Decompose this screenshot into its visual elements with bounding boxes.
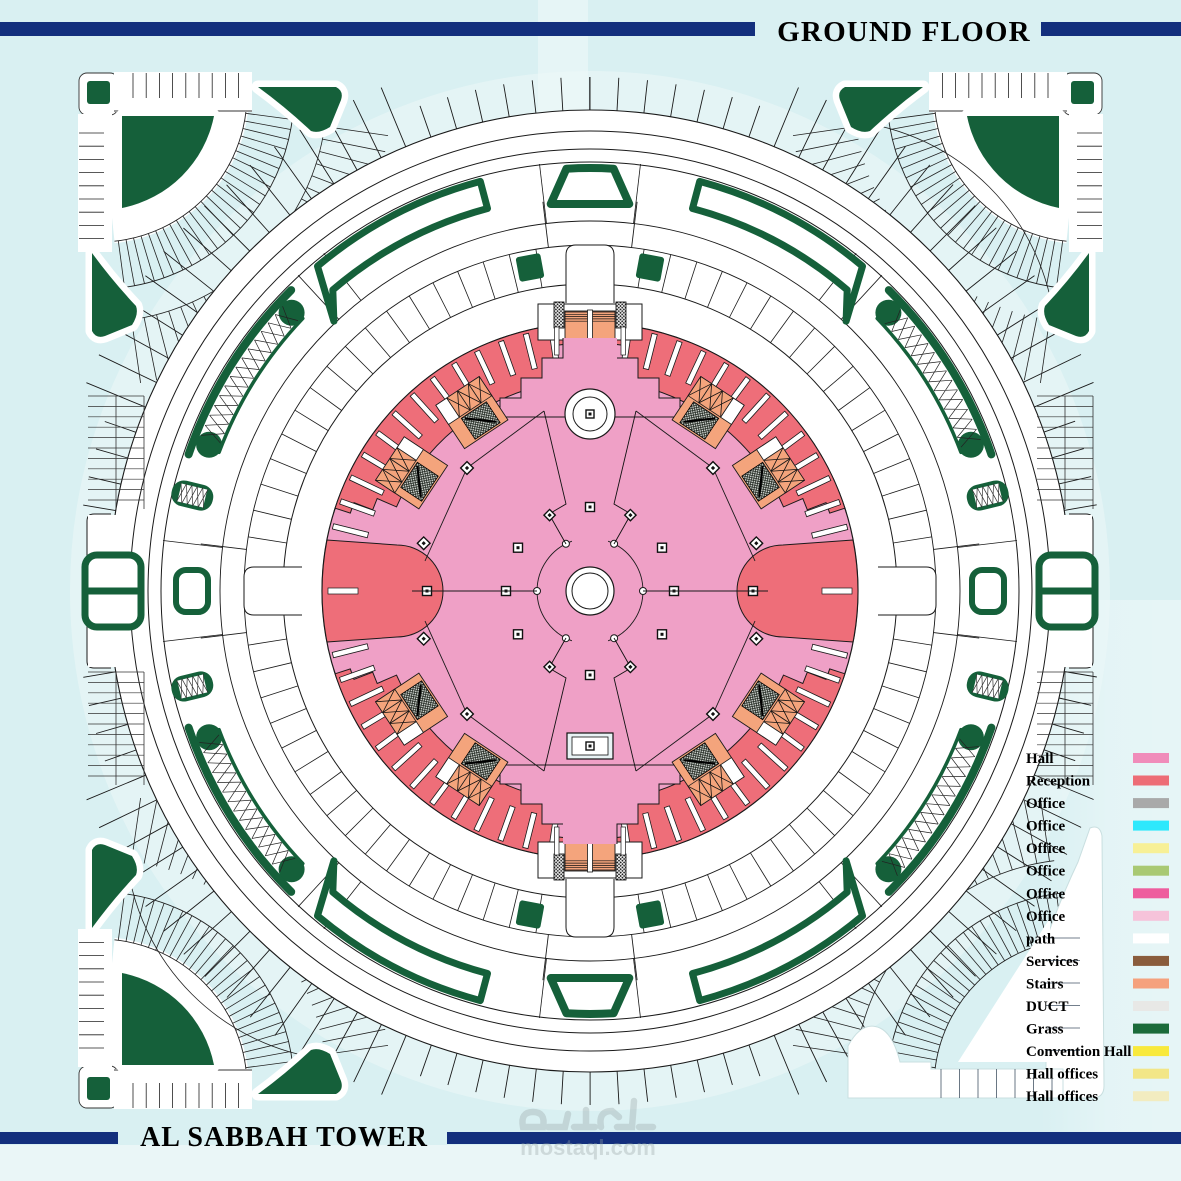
- svg-text:Hall offices: Hall offices: [1026, 1067, 1098, 1083]
- svg-text:Office: Office: [1026, 909, 1065, 925]
- svg-text:AL SABBAH TOWER: AL SABBAH TOWER: [140, 1122, 428, 1153]
- svg-text:path: path: [1026, 931, 1056, 947]
- svg-text:Office: Office: [1026, 796, 1065, 812]
- svg-text:DUCT: DUCT: [1026, 999, 1069, 1015]
- svg-text:GROUND FLOOR: GROUND FLOOR: [777, 16, 1031, 48]
- svg-text:Grass: Grass: [1026, 1022, 1064, 1038]
- svg-text:Hall: Hall: [1026, 751, 1054, 767]
- svg-text:Office: Office: [1026, 886, 1065, 902]
- svg-text:mostaql.com: mostaql.com: [520, 1135, 656, 1160]
- svg-text:Convention Hall: Convention Hall: [1026, 1044, 1131, 1060]
- svg-text:Reception: Reception: [1026, 774, 1091, 790]
- svg-text:Office: Office: [1026, 864, 1065, 880]
- svg-text:Office: Office: [1026, 841, 1065, 857]
- svg-text:Office: Office: [1026, 819, 1065, 835]
- svg-text:Services: Services: [1026, 954, 1079, 970]
- svg-text:Hall offices: Hall offices: [1026, 1089, 1098, 1105]
- svg-text:Stairs: Stairs: [1026, 977, 1064, 993]
